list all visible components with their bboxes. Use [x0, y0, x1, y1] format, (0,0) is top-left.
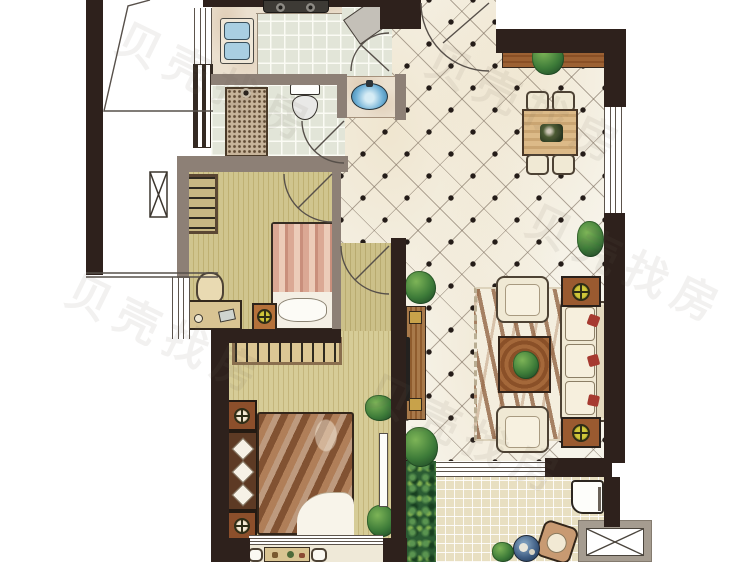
entry-door-arc — [421, 3, 489, 71]
kitchen-door-leaf — [361, 45, 389, 71]
bedroom2-door-leaf — [298, 174, 332, 208]
master-door-leaf — [355, 246, 389, 280]
void-outline — [104, 0, 213, 111]
bath-door-leaf — [314, 121, 344, 151]
annotations-overlay — [0, 0, 750, 562]
floor-plan-canvas: 贝壳找房 贝壳找房 贝壳找房 贝壳找房 贝壳找房 — [0, 0, 750, 562]
entry-door-leaf — [443, 3, 489, 43]
